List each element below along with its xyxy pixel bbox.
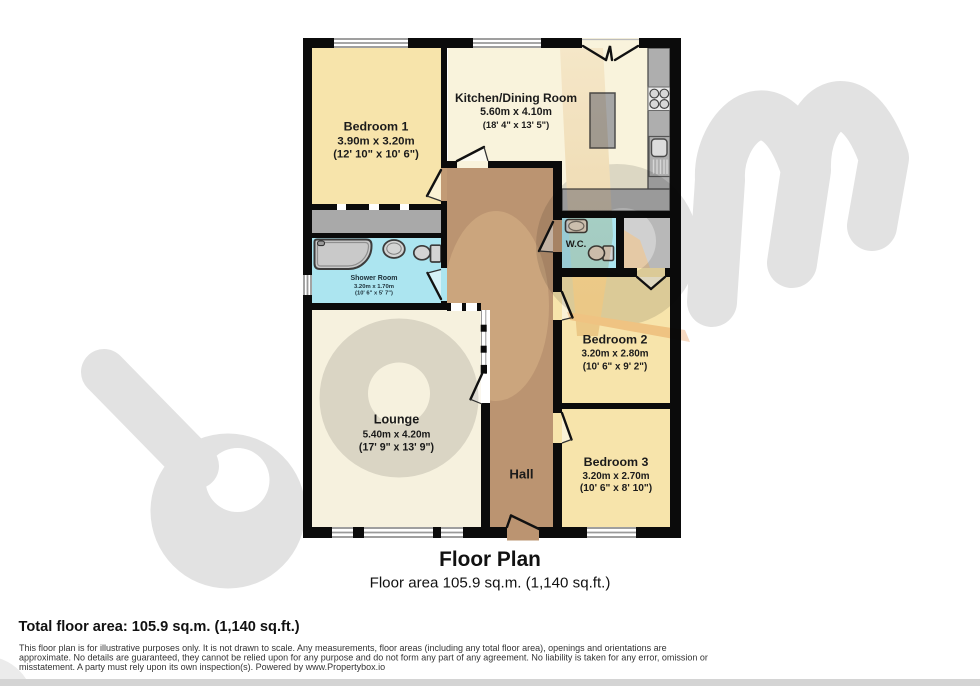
svg-text:Floor area 105.9 sq.m. (1,140: Floor area 105.9 sq.m. (1,140 sq.ft.)	[370, 575, 611, 592]
svg-text:Bedroom 3: Bedroom 3	[584, 455, 649, 469]
svg-text:(10' 6" x 9' 2"): (10' 6" x 9' 2")	[583, 362, 648, 373]
svg-text:(10' 6" x 8' 10"): (10' 6" x 8' 10")	[580, 483, 652, 494]
svg-text:3.20m x 1.70m: 3.20m x 1.70m	[354, 284, 394, 290]
svg-text:(12' 10" x 10' 6"): (12' 10" x 10' 6")	[333, 149, 419, 161]
svg-text:3.90m x 3.20m: 3.90m x 3.20m	[337, 136, 414, 148]
svg-text:3.20m x 2.70m: 3.20m x 2.70m	[583, 471, 650, 482]
svg-text:Total floor area: 105.9 sq.m.: Total floor area: 105.9 sq.m. (1,140 sq.…	[19, 619, 300, 635]
svg-text:5.60m x 4.10m: 5.60m x 4.10m	[480, 106, 552, 118]
svg-text:Bedroom 1: Bedroom 1	[344, 120, 409, 134]
svg-text:Shower Room: Shower Room	[350, 275, 397, 282]
svg-text:approximate. No details are gu: approximate. No details are guaranteed, …	[19, 653, 708, 663]
svg-text:misstatement. A party must rel: misstatement. A party must rely upon its…	[19, 662, 385, 672]
svg-text:Hall: Hall	[509, 467, 533, 482]
svg-text:3.20m x 2.80m: 3.20m x 2.80m	[582, 349, 649, 360]
svg-text:Floor Plan: Floor Plan	[439, 548, 541, 571]
svg-text:(10' 6" x 5' 7"): (10' 6" x 5' 7")	[355, 291, 393, 297]
svg-text:This floor plan is for illustr: This floor plan is for illustrative purp…	[19, 643, 667, 653]
svg-text:(18' 4" x 13' 5"): (18' 4" x 13' 5")	[483, 119, 550, 130]
svg-text:Kitchen/Dining Room: Kitchen/Dining Room	[455, 91, 577, 105]
